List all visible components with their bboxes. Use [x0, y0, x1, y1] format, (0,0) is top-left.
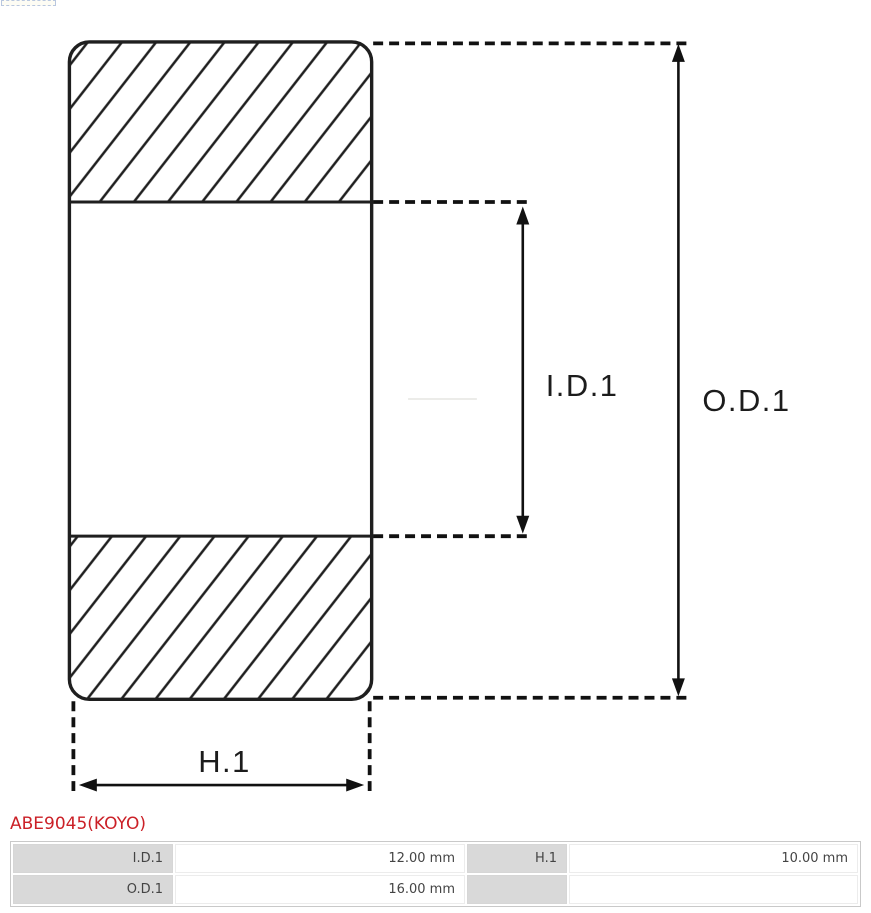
- od-dimension-label: O.D.1: [702, 383, 790, 418]
- table-row: O.D.1 16.00 mm: [13, 875, 858, 904]
- spec-value-empty: [569, 875, 858, 904]
- id-dimension-label: I.D.1: [546, 368, 619, 403]
- spec-label-id: I.D.1: [13, 844, 173, 873]
- outer-ring-bottom-hatch: [69, 536, 371, 699]
- od-dimension-arrow: [672, 44, 685, 696]
- id-dimension-arrow: [516, 206, 529, 533]
- arrow-up-head: [672, 44, 685, 62]
- loading-placeholder: [1, 0, 56, 6]
- spec-value-id: 12.00 mm: [175, 844, 465, 873]
- spec-label-od: O.D.1: [13, 875, 173, 904]
- outer-ring-top-hatch: [69, 42, 371, 202]
- h-dimension-label: H.1: [198, 744, 251, 779]
- spec-value-od: 16.00 mm: [175, 875, 465, 904]
- part-number-heading: ABE9045(KOYO): [10, 814, 871, 835]
- spec-table: I.D.1 12.00 mm H.1 10.00 mm O.D.1 16.00 …: [10, 841, 861, 907]
- bearing-technical-drawing: I.D.1 O.D.1 H.1: [0, 0, 871, 808]
- page: I.D.1 O.D.1 H.1 ABE9045(KOYO) I.D.1 12.0…: [0, 0, 871, 913]
- arrow-up-head: [516, 206, 529, 224]
- arrow-right-head: [346, 779, 364, 792]
- table-row: I.D.1 12.00 mm H.1 10.00 mm: [13, 844, 858, 873]
- h-dimension-arrow: [79, 779, 364, 792]
- spec-label-empty: [467, 875, 567, 904]
- arrow-down-head: [672, 678, 685, 696]
- arrow-down-head: [516, 516, 529, 534]
- arrow-left-head: [79, 779, 97, 792]
- spec-value-h: 10.00 mm: [569, 844, 858, 873]
- spec-label-h: H.1: [467, 844, 567, 873]
